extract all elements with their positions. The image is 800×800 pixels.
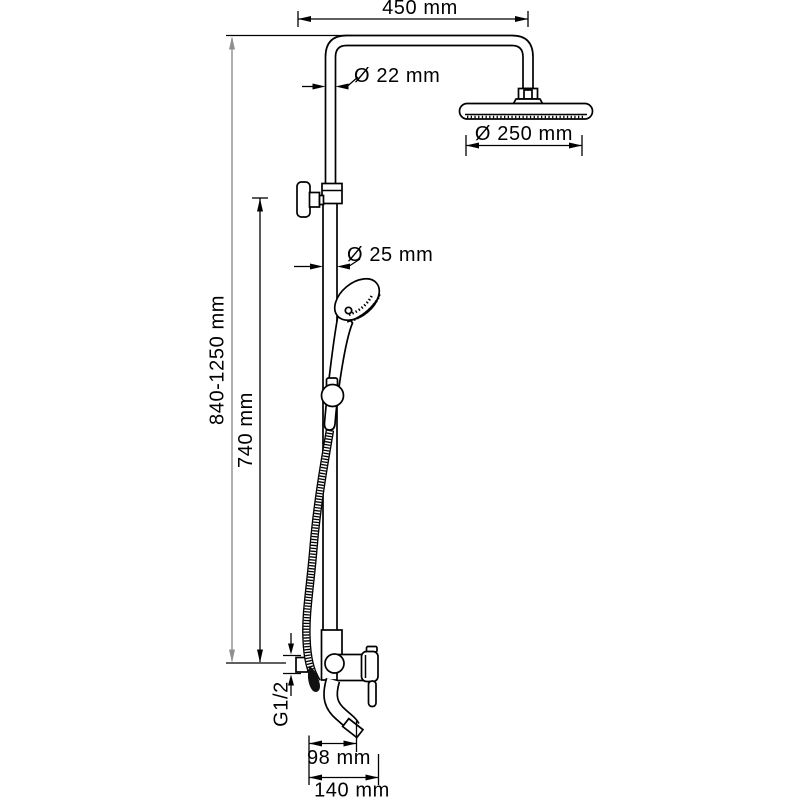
dimension-upper-pipe-diameter: Ø 22 mm: [302, 65, 440, 90]
mixer-handle: [362, 647, 379, 707]
dimension-top-arm-width: 450 mm: [298, 0, 528, 27]
overhead-shower: [460, 89, 593, 120]
dimension-label-740: 740 mm: [235, 392, 257, 468]
dimension-label-dia250: Ø 250 mm: [475, 123, 573, 145]
dimension-lower-pipe-diameter: Ø 25 mm: [294, 244, 433, 270]
shower-column-technical-drawing: 450 mm 840-1250 mm 740 mm Ø 22 mm: [0, 0, 800, 800]
dimension-label-height-range: 840-1250 mm: [207, 295, 229, 425]
wall-bracket: [297, 182, 324, 217]
spout-aerator: [343, 719, 363, 738]
dimension-label-98: 98 mm: [307, 747, 371, 769]
tub-spout: [331, 680, 363, 738]
height-adjust-clamp: [322, 184, 342, 204]
dimension-label-140: 140 mm: [314, 780, 390, 800]
diverter-knob: [325, 654, 344, 673]
dimension-overhead-shower-diameter: Ø 250 mm: [466, 123, 582, 156]
dimension-label-g12: G1/2: [271, 681, 293, 727]
shower-head-disc: [460, 104, 593, 120]
hand-shower-mode-button: [345, 307, 351, 313]
dimension-bracket-height: 740 mm: [235, 198, 268, 663]
dimension-label-dia22: Ø 22 mm: [354, 65, 440, 87]
dimension-label-450: 450 mm: [382, 0, 458, 19]
dimension-inlet-thread: G1/2: [271, 633, 302, 727]
dimensions: 450 mm 840-1250 mm 740 mm Ø 22 mm: [207, 0, 583, 800]
dimension-label-dia25: Ø 25 mm: [347, 244, 433, 266]
